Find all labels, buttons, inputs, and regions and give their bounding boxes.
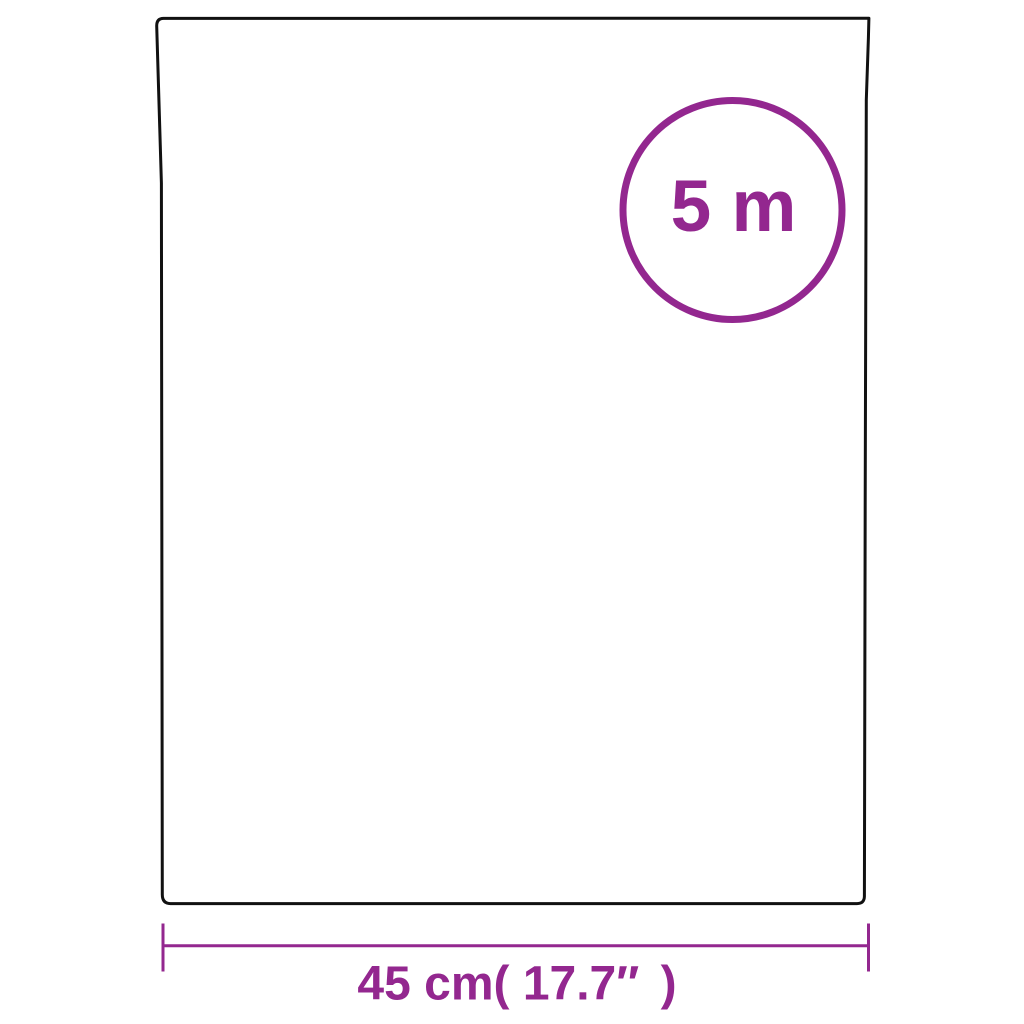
svg-text:45 cm( 17.7″ ): 45 cm( 17.7″ ) [357,958,676,1011]
svg-text:5 m: 5 m [671,166,797,247]
